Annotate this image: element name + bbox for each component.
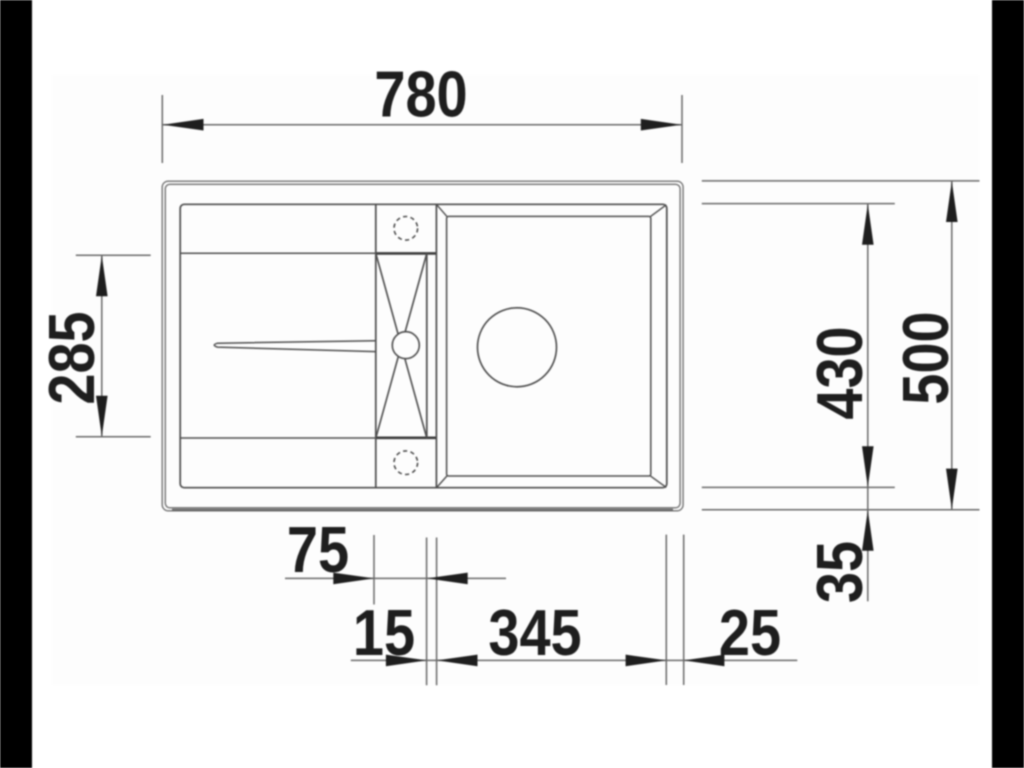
svg-text:15: 15 [353, 596, 415, 669]
svg-text:780: 780 [374, 58, 467, 131]
svg-text:345: 345 [488, 596, 581, 669]
svg-text:35: 35 [803, 541, 876, 603]
svg-text:285: 285 [35, 311, 108, 404]
svg-text:500: 500 [889, 311, 962, 404]
svg-text:75: 75 [287, 513, 349, 586]
svg-text:430: 430 [803, 326, 876, 419]
svg-text:25: 25 [719, 596, 781, 669]
